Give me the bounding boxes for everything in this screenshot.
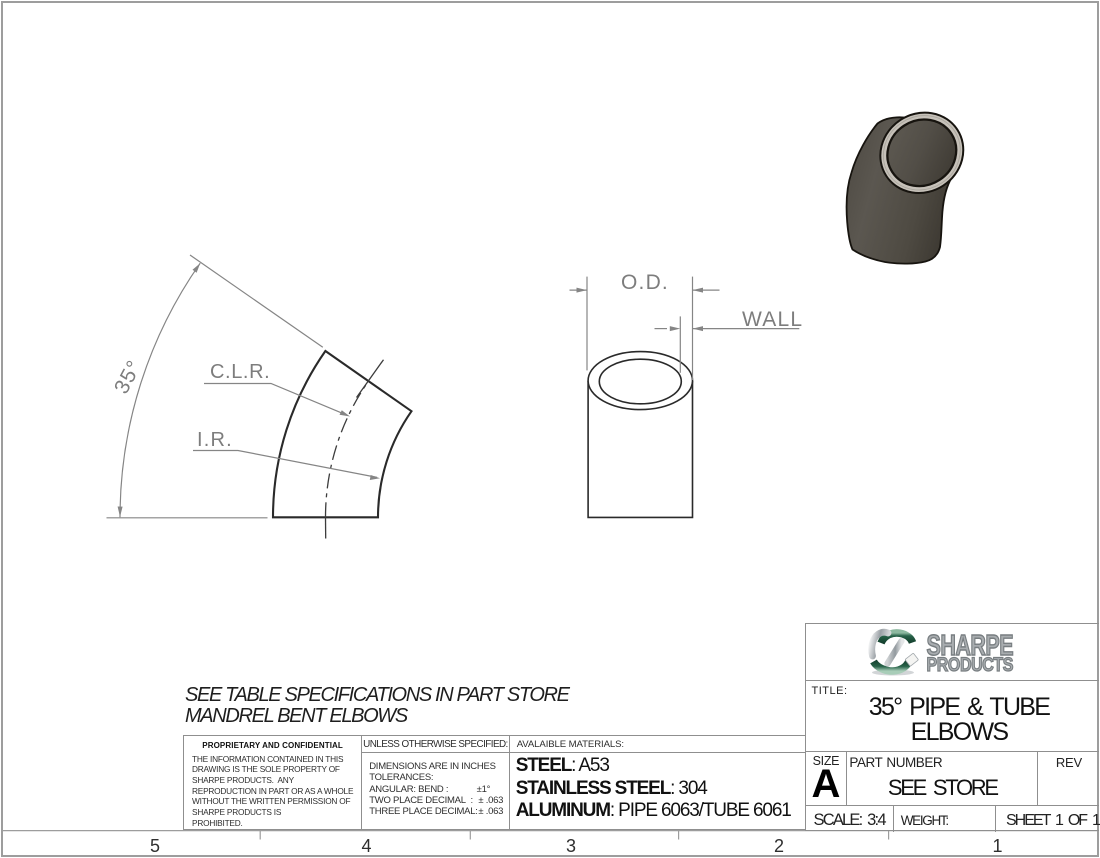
svg-text:1: 1 [992,836,1002,856]
svg-text:I.R.: I.R. [197,429,233,451]
svg-text:35°: 35° [110,356,147,397]
svg-text:O.D.: O.D. [621,271,669,294]
svg-text:4: 4 [361,836,371,856]
svg-text:2: 2 [774,836,784,856]
svg-text:C.L.R.: C.L.R. [210,361,270,383]
svg-text:5: 5 [150,836,160,856]
svg-text:3: 3 [566,836,576,856]
svg-text:WALL: WALL [742,308,803,331]
